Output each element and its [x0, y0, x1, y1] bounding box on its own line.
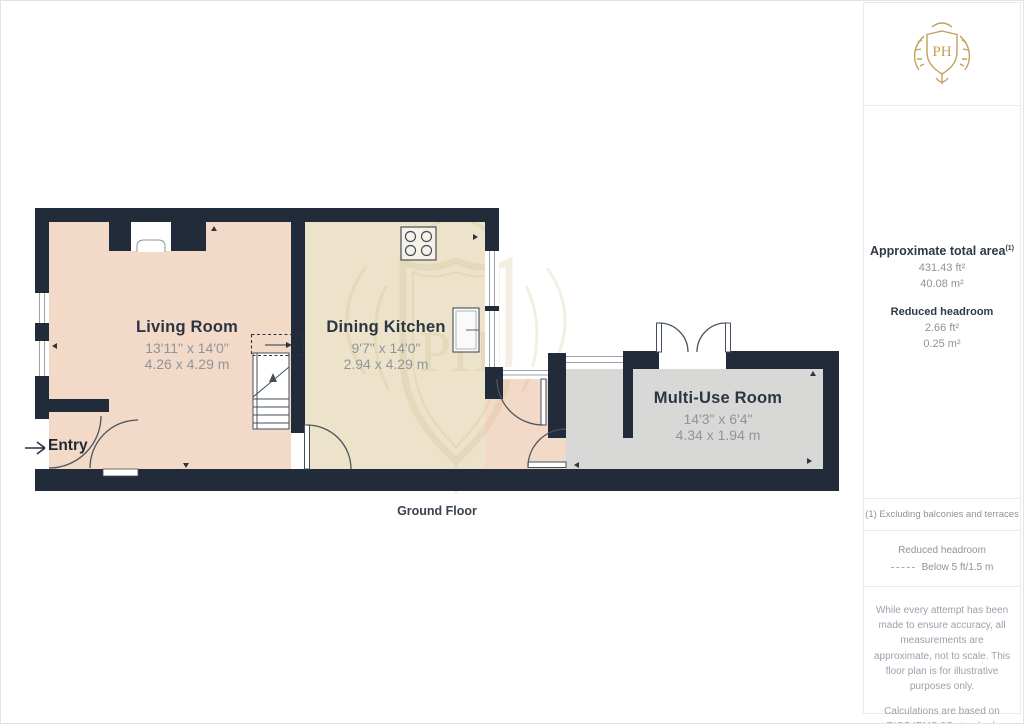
wall-segment — [35, 208, 499, 222]
logo-initials: PH — [932, 44, 951, 60]
room-name: Dining Kitchen — [286, 318, 486, 337]
window — [485, 311, 499, 367]
fireplace-alcove — [131, 222, 171, 251]
multi-use-room-label: Multi-Use Room 14'3" x 6'4" 4.34 x 1.94 … — [598, 389, 838, 443]
floorplan-page: PH — [0, 0, 1024, 724]
room-dims-metric: 4.26 x 4.29 m — [87, 356, 287, 372]
wall-segment — [485, 208, 499, 251]
floor-title: Ground Floor — [337, 504, 537, 518]
info-panel: PH Approximate total area(1) 431.43 ft² … — [863, 3, 1021, 714]
wall-segment — [548, 379, 566, 438]
disclaimer: While every attempt has been made to ens… — [863, 586, 1021, 714]
wall-segment — [35, 222, 49, 293]
total-area-m: 40.08 m² — [864, 278, 1020, 290]
door-opening — [659, 351, 726, 369]
legend-item: Below 5 ft/1.5 m — [922, 562, 994, 573]
wall-segment — [35, 469, 839, 491]
legend-title: Reduced headroom — [898, 545, 986, 556]
agency-logo-box: PH — [863, 2, 1021, 106]
living-room-label: Living Room 13'11" x 14'0" 4.26 x 4.29 m — [87, 318, 287, 372]
disclaimer-text: While every attempt has been made to ens… — [873, 603, 1011, 694]
room-dims-imperial: 14'3" x 6'4" — [598, 411, 838, 427]
room-name: Multi-Use Room — [598, 389, 838, 408]
entry-label: Entry — [48, 437, 88, 455]
floor-plan: PH — [1, 1, 863, 724]
total-area-title: Approximate total area(1) — [864, 244, 1020, 258]
total-area-ft: 431.43 ft² — [864, 262, 1020, 274]
footnote-marker: (1) — [1005, 245, 1014, 252]
room-dims-imperial: 13'11" x 14'0" — [87, 340, 287, 356]
room-name: Living Room — [87, 318, 287, 337]
window — [485, 251, 499, 306]
reduced-headroom-m: 0.25 m² — [864, 338, 1020, 350]
window — [503, 367, 548, 379]
room-dims-imperial: 9'7" x 14'0" — [286, 340, 486, 356]
reduced-headroom-title: Reduced headroom — [864, 306, 1020, 318]
legend: Reduced headroom Below 5 ft/1.5 m — [863, 530, 1021, 587]
wall-segment — [35, 323, 49, 341]
ph-crest-logo: PH — [904, 18, 980, 90]
window — [35, 341, 49, 376]
entry-arrow-icon — [25, 442, 45, 454]
calculation-note: Calculations are based on RICS IPMS 3C s… — [873, 704, 1011, 724]
dashed-line-icon — [891, 567, 915, 568]
window — [35, 293, 49, 323]
wall-segment — [485, 367, 503, 399]
area-summary: Approximate total area(1) 431.43 ft² 40.… — [863, 105, 1021, 499]
wall-segment — [548, 353, 566, 379]
dining-kitchen-label: Dining Kitchen 9'7" x 14'0" 2.94 x 4.29 … — [286, 318, 486, 372]
footnote: (1) Excluding balconies and terraces — [863, 498, 1021, 531]
entry-lobby-wall — [49, 399, 109, 412]
window — [566, 351, 623, 369]
room-dims-metric: 2.94 x 4.29 m — [286, 356, 486, 372]
reduced-headroom-ft: 2.66 ft² — [864, 322, 1020, 334]
room-dims-metric: 4.34 x 1.94 m — [598, 427, 838, 443]
wall-segment — [35, 376, 49, 419]
